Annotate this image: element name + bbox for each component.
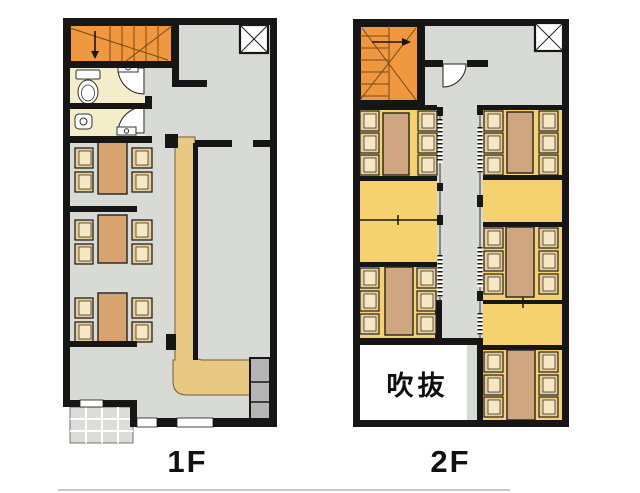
void-label: 吹抜 (365, 362, 470, 404)
staircase-icon (360, 26, 418, 102)
dining-booth (75, 140, 152, 194)
dining-table (507, 112, 533, 173)
window-opening (177, 418, 213, 427)
entrance-tiles (70, 407, 133, 443)
dining-table (507, 350, 535, 420)
toilet-icon (76, 70, 100, 104)
cabinet (250, 358, 270, 421)
shaft-x-icon (240, 25, 268, 53)
page-rule-line (58, 489, 510, 491)
urinal-icon (75, 114, 92, 129)
tatami-seating (360, 111, 437, 175)
floor-plan-image: 1F 2F 吹抜 (0, 0, 640, 493)
dining-table (98, 215, 127, 263)
dining-booth (75, 293, 152, 343)
tatami-seating (360, 267, 436, 335)
tatami-seating (484, 227, 558, 297)
floor-label-1f: 1F (145, 444, 230, 480)
tatami-seating (484, 111, 558, 175)
dining-table (506, 227, 534, 297)
floor-plan-1f (60, 15, 280, 451)
dining-booth (75, 215, 152, 264)
staircase-icon (70, 25, 172, 63)
sink-icon (117, 127, 136, 135)
dining-table (383, 113, 409, 175)
floor-label-2f: 2F (408, 444, 493, 480)
dining-table (98, 140, 127, 194)
shaft-x-icon (535, 23, 563, 51)
window-opening (137, 418, 157, 427)
dining-table (98, 293, 127, 343)
dining-table (385, 267, 413, 335)
tatami-seating (484, 350, 558, 420)
entrance-opening (80, 400, 103, 407)
